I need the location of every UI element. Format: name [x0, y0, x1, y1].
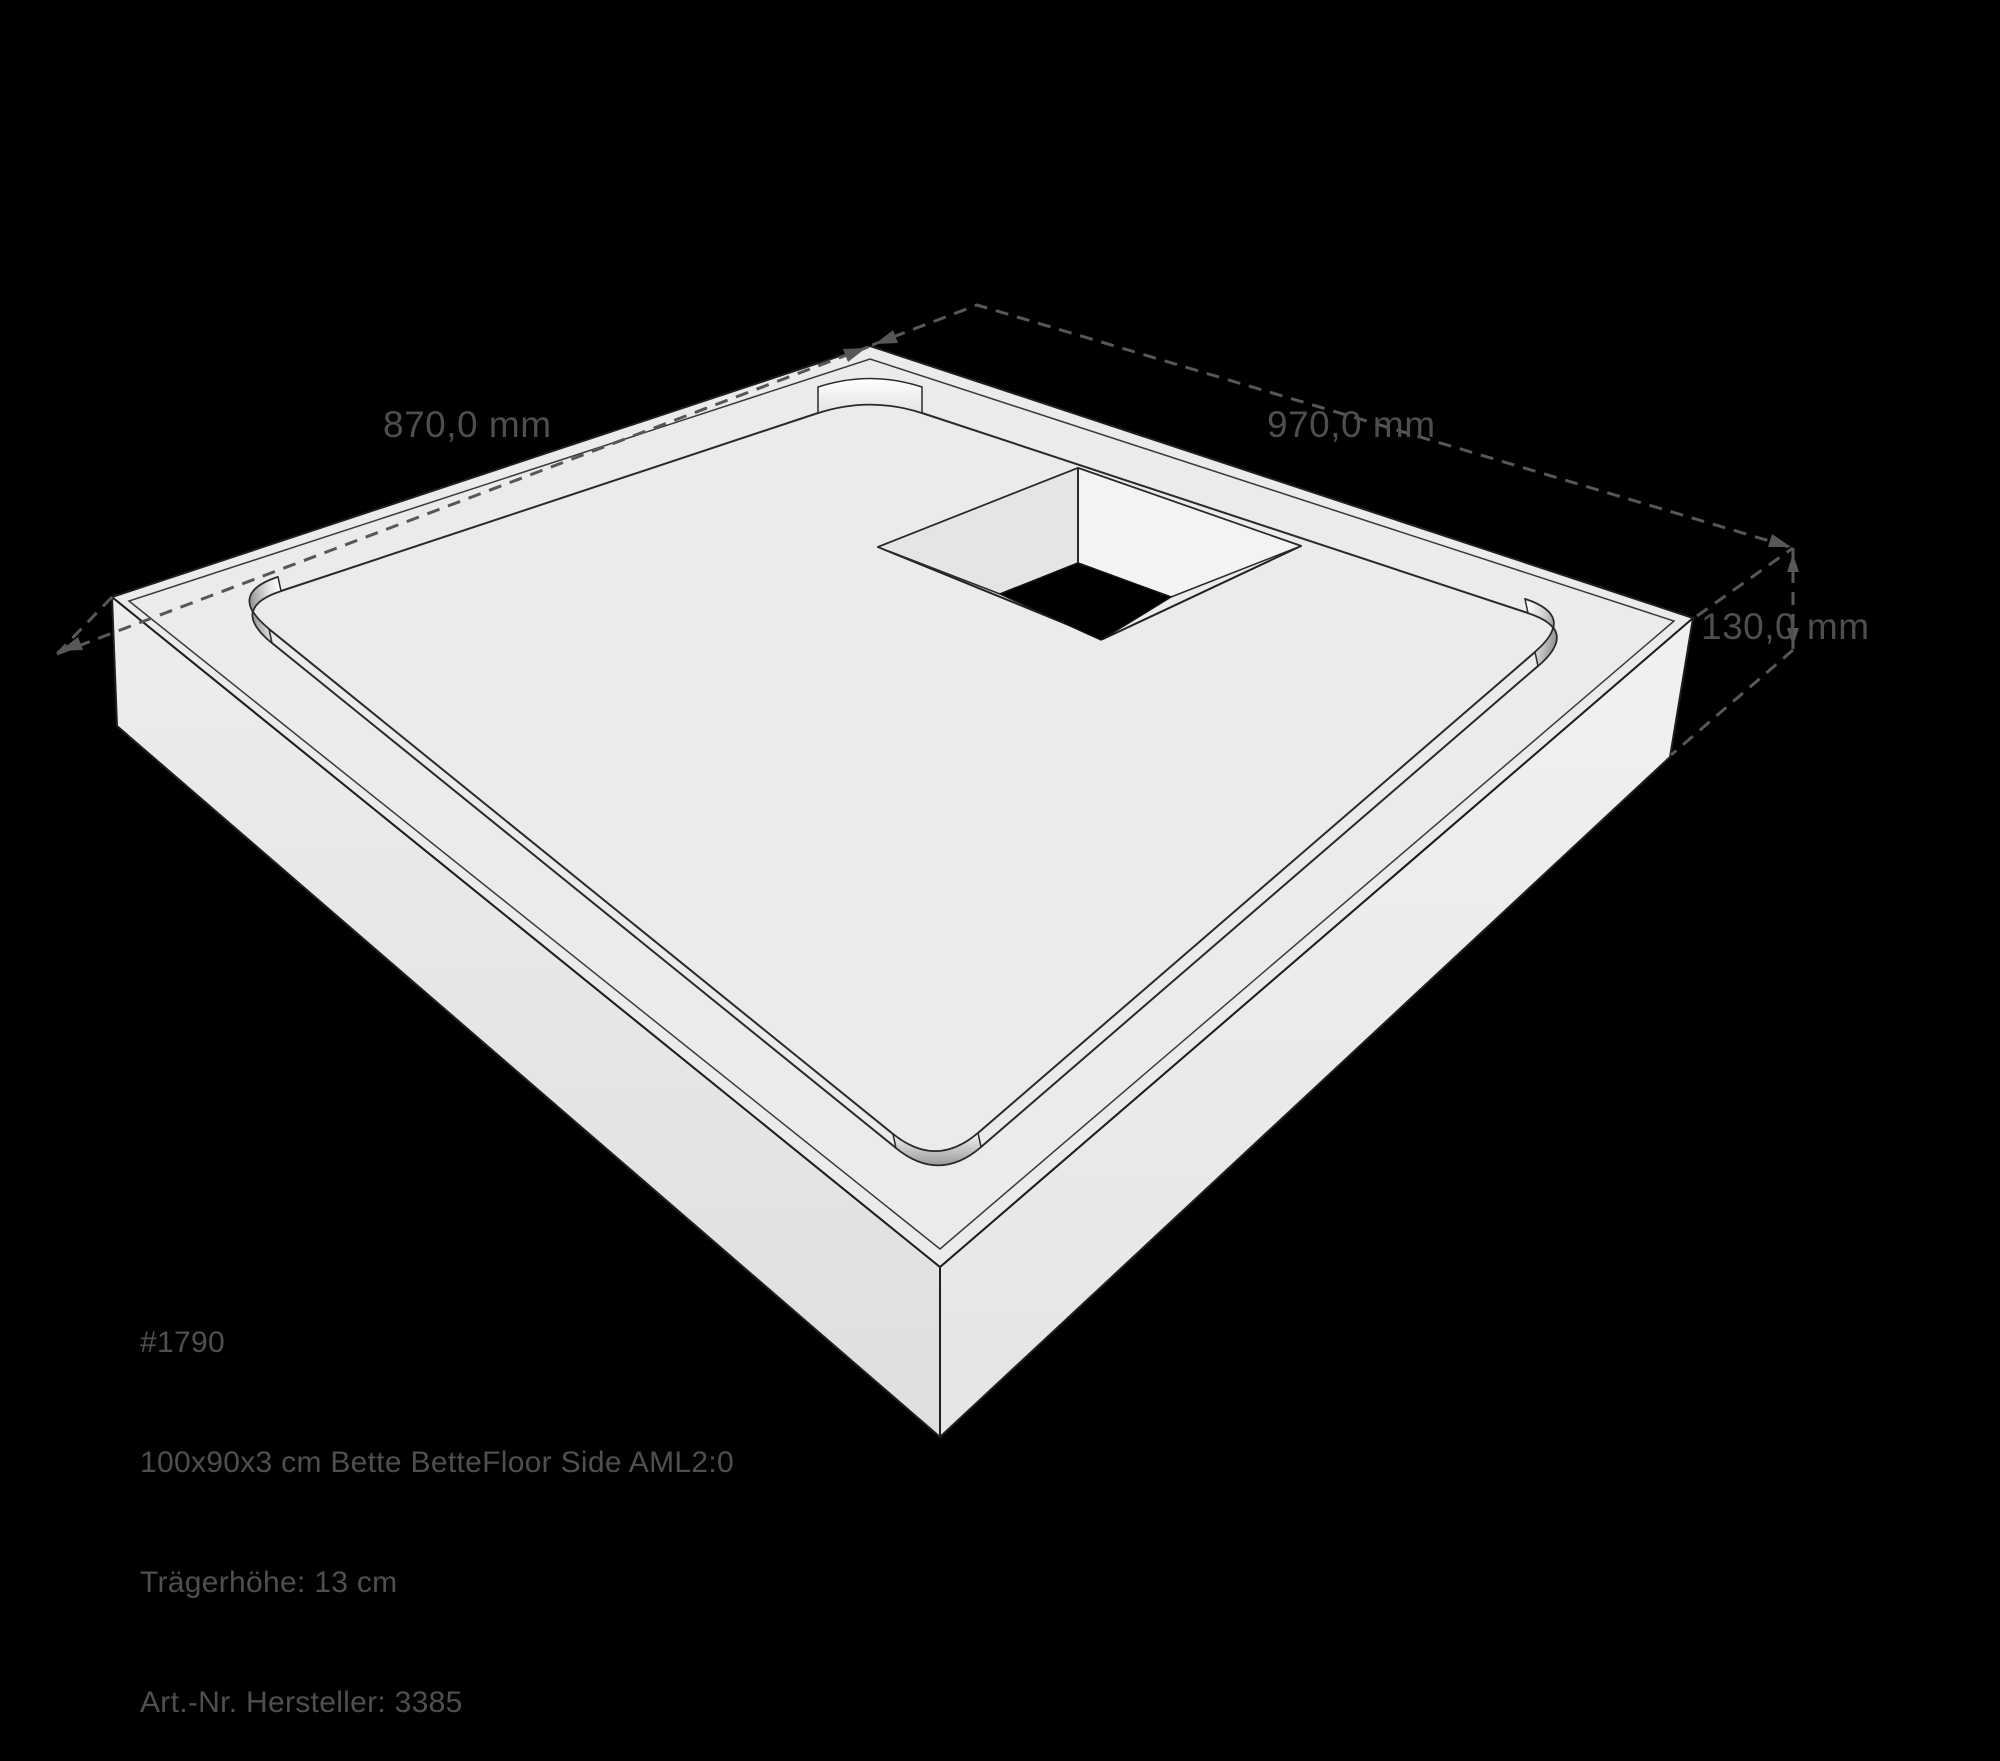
- caption-carrier-height: Trägerhöhe: 13 cm: [140, 1563, 734, 1603]
- caption-product-name: 100x90x3 cm Bette BetteFloor Side AML2:0: [140, 1443, 734, 1483]
- caption-model-number: #1790: [140, 1323, 734, 1363]
- dimension-label-height: 130,0 mm: [1701, 606, 1870, 647]
- product-caption: #1790 100x90x3 cm Bette BetteFloor Side …: [140, 1243, 734, 1761]
- dimension-label-back-right: 970,0 mm: [1267, 404, 1436, 445]
- dimension-label-back-left: 870,0 mm: [383, 404, 552, 445]
- caption-article-number: Art.-Nr. Hersteller: 3385: [140, 1683, 734, 1723]
- shower-tray-support-diagram: 870,0 mm 970,0 mm 130,0 mm #1790 100x90x…: [0, 0, 2000, 1761]
